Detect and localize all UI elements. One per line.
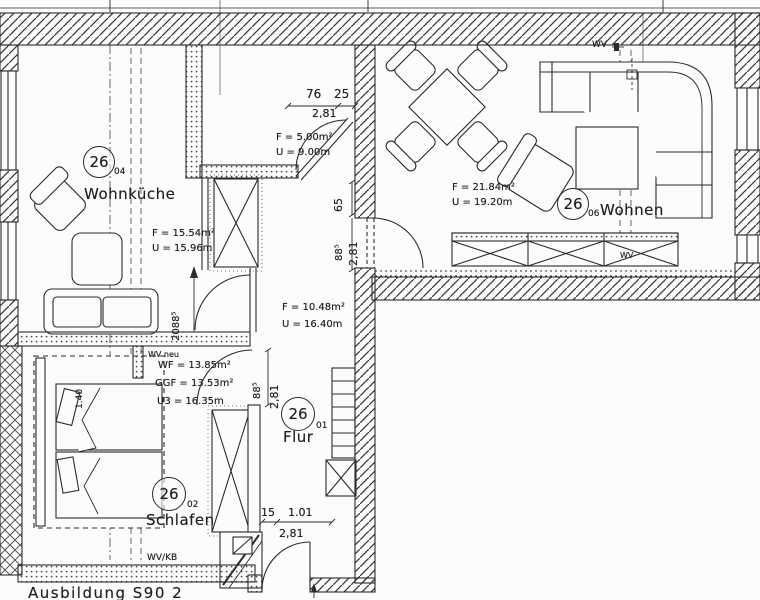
dim-entry-seg1: 15 [261, 507, 275, 518]
wall-stub [133, 346, 143, 378]
bad-left-wall [186, 45, 202, 178]
floor-plan: 26 04 Wohnküche F = 15.54m² U = 15.96m F… [0, 0, 760, 600]
area-bad: F = 5.00m² [276, 133, 333, 143]
perimeter-wohnkueche: U = 15.96m [152, 244, 212, 254]
area-flur: F = 10.48m² [282, 303, 345, 313]
schlafen-ggf: GGF = 13.53m² [155, 379, 233, 389]
left-wall-seg3 [0, 300, 18, 346]
dim-bad-total: 2,81 [312, 108, 337, 119]
dim-kueche-door: 2088⁵ [172, 312, 182, 341]
center-wall-lower [355, 268, 375, 583]
dim-flur-door-b: 2,81 [269, 385, 280, 410]
room-number-schlafen: 26 [152, 477, 186, 511]
shelf-radiator [332, 368, 355, 458]
wohnkueche-south-wall [18, 332, 250, 346]
door-arc-entry [262, 542, 310, 590]
bad-bottom-wall [200, 165, 298, 178]
kueche-door-arrow [190, 266, 198, 332]
annotation-wv-sideboard: WV [620, 252, 633, 260]
side-table [576, 127, 638, 189]
room-number-wohnen: 26 [557, 188, 589, 220]
wohnen-bottom-wall [372, 277, 760, 300]
headboard [36, 358, 45, 526]
window-left-2 [1, 222, 16, 300]
sideboard [452, 233, 678, 266]
right-wall-seg2 [735, 150, 760, 235]
cabinet-x [326, 460, 356, 496]
annotation-wv-neu: WV neu [148, 351, 179, 359]
room-label-flur: Flur [283, 430, 313, 445]
grid-ticks [110, 0, 663, 13]
right-wall-seg1 [735, 13, 760, 88]
window-left-1 [1, 71, 16, 170]
door-arc-bad [296, 120, 346, 170]
dim-bad-seg2: 25 [334, 88, 349, 100]
coffee-table [72, 233, 122, 285]
center-wall-upper [355, 45, 375, 218]
left-wall-seg2 [0, 170, 18, 222]
plan-linework [0, 0, 760, 600]
dim-wohnen-door-width: 65 [333, 198, 344, 212]
window-right-2 [737, 235, 758, 263]
window-right [737, 88, 758, 150]
furniture-wohnen [384, 39, 712, 266]
dining-chair-nw [384, 39, 438, 93]
area-wohnkueche: F = 15.54m² [152, 229, 215, 239]
room-suffix-flur: 01 [316, 421, 327, 431]
bottom-wall-left-wing [18, 565, 255, 582]
dim-bad-seg1: 76 [306, 88, 321, 100]
room-suffix-schlafen: 02 [187, 500, 198, 510]
area-wohnen: F = 21.84m² [452, 183, 515, 193]
schlafen-wf: WF = 13.85m² [158, 361, 231, 371]
right-wall-seg3 [735, 263, 760, 300]
room-label-schlafen: Schlafen [146, 513, 215, 528]
sofa [44, 289, 158, 334]
kitchen-unit [210, 175, 262, 271]
perimeter-wohnen: U = 19.20m [452, 198, 512, 208]
perimeter-bad: U = 9.00m [276, 148, 330, 158]
party-wall [0, 346, 22, 575]
room-number-flur: 26 [281, 397, 315, 431]
flur-bottom-stub [248, 575, 262, 592]
dim-flur-door-a: 88⁵ [253, 382, 263, 399]
room-label-wohnen: Wohnen [600, 203, 664, 218]
dim-wohnen-door-b: 2,81 [348, 242, 359, 267]
schlafen-u3: U3 = 16.35m [157, 397, 224, 407]
room-number-wohnkueche: 26 [83, 146, 115, 178]
dim-wohnen-door-a: 88⁵ [335, 244, 345, 261]
dim-bed-width: 1.40 [76, 389, 85, 409]
perimeter-flur: U = 16.40m [282, 320, 342, 330]
flur-bottom-wall [310, 578, 375, 592]
door-arc-wohnen [373, 218, 423, 268]
dim-entry-seg2: 1.01 [288, 507, 313, 518]
dim-entry-total: 2,81 [279, 528, 304, 539]
bottom-note: Ausbildung S90 2 [28, 586, 183, 600]
room-label-wohnkueche: Wohnküche [84, 187, 175, 202]
left-wall-seg1 [0, 45, 18, 71]
schlafen-flur-wall [248, 405, 260, 532]
top-wall [0, 13, 760, 45]
door-arc-kueche [195, 275, 250, 330]
annotation-wv-kb: WV/KB [147, 554, 177, 563]
annotation-wv-top: WV [592, 41, 607, 50]
room-suffix-wohnkueche: 04 [114, 167, 125, 177]
room-suffix-wohnen: 06 [588, 209, 599, 219]
